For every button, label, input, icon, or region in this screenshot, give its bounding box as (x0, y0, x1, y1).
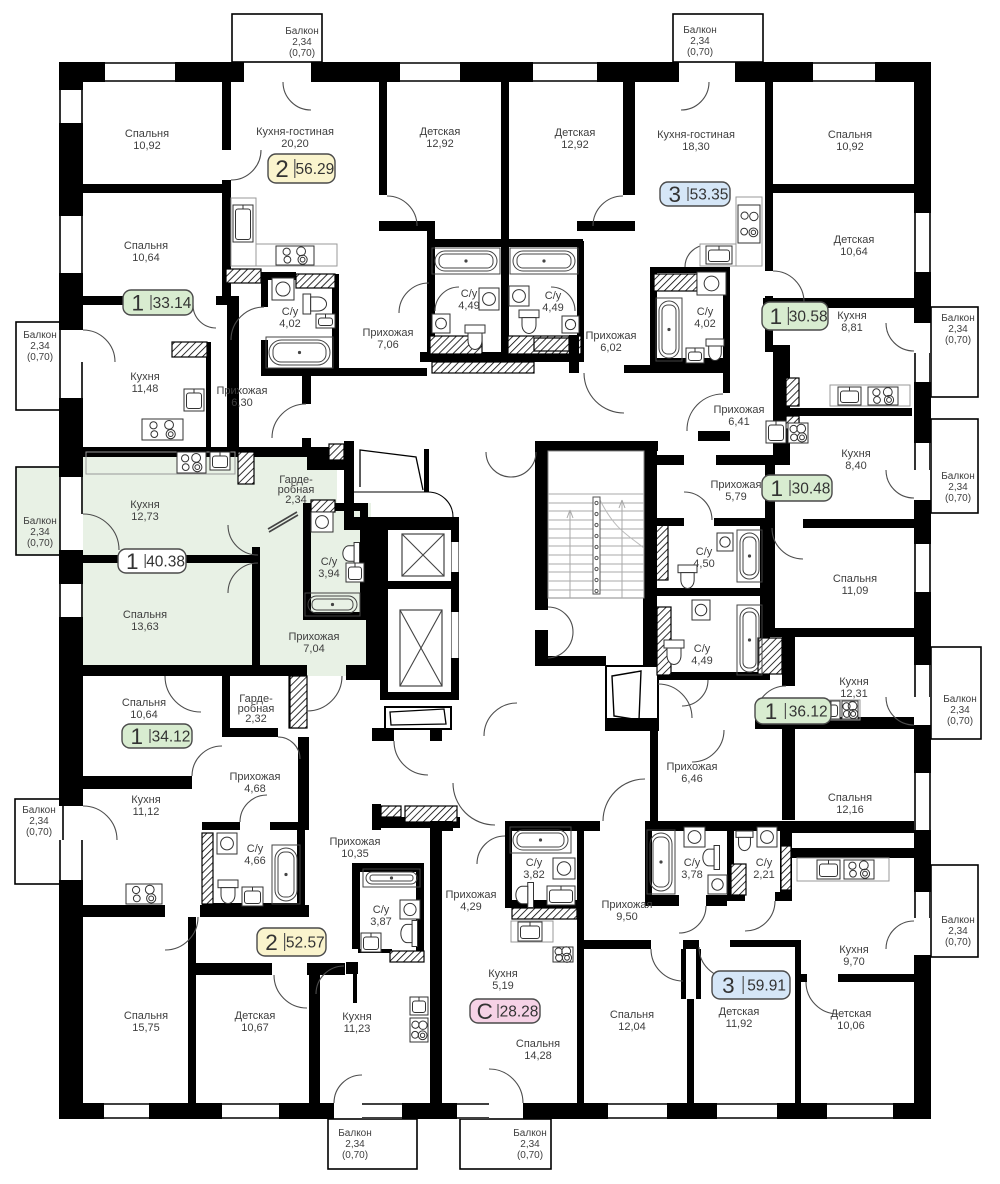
svg-text:1: 1 (131, 291, 144, 316)
svg-text:С/у3,78: С/у3,78 (681, 857, 702, 881)
svg-text:Кухня9,70: Кухня9,70 (839, 944, 868, 968)
svg-text:Кухня5,19: Кухня5,19 (488, 968, 517, 992)
svg-text:1: 1 (770, 304, 783, 329)
svg-text:59.91: 59.91 (747, 978, 786, 995)
svg-text:С/у4,49: С/у4,49 (691, 643, 712, 667)
svg-text:Кухня8,40: Кухня8,40 (841, 448, 870, 472)
svg-text:Кухня12,73: Кухня12,73 (130, 499, 159, 523)
svg-text:С/у4,02: С/у4,02 (279, 306, 300, 330)
svg-text:Кухня11,12: Кухня11,12 (131, 794, 160, 818)
svg-text:С/у3,94: С/у3,94 (318, 556, 339, 580)
svg-text:36.12: 36.12 (789, 704, 828, 721)
svg-text:34.12: 34.12 (152, 729, 191, 746)
svg-text:Кухня11,23: Кухня11,23 (342, 1011, 371, 1035)
svg-text:3: 3 (722, 973, 735, 998)
svg-text:2: 2 (265, 930, 278, 955)
svg-text:С/у4,02: С/у4,02 (694, 306, 715, 330)
svg-text:С/у3,82: С/у3,82 (523, 857, 544, 881)
svg-text:Кухня8,81: Кухня8,81 (837, 310, 866, 334)
svg-text:3: 3 (668, 182, 681, 207)
svg-text:52.57: 52.57 (286, 935, 325, 952)
svg-text:С/у4,50: С/у4,50 (693, 546, 714, 570)
svg-text:С/у4,66: С/у4,66 (244, 843, 265, 867)
svg-text:53.35: 53.35 (690, 187, 729, 204)
svg-text:33.14: 33.14 (153, 295, 192, 312)
svg-text:40.38: 40.38 (146, 554, 185, 571)
svg-text:30.48: 30.48 (792, 481, 831, 498)
svg-text:Кухня12,31: Кухня12,31 (839, 676, 868, 700)
svg-text:1: 1 (770, 476, 783, 501)
svg-text:Кухня11,48: Кухня11,48 (130, 371, 159, 395)
svg-text:С/у4,49: С/у4,49 (542, 290, 563, 314)
svg-text:1: 1 (126, 549, 139, 574)
svg-text:1: 1 (130, 724, 143, 749)
svg-text:1: 1 (765, 699, 778, 724)
svg-text:С: С (477, 999, 493, 1024)
svg-text:С/у3,87: С/у3,87 (370, 904, 391, 928)
svg-text:56.29: 56.29 (296, 161, 335, 178)
svg-text:30.58: 30.58 (789, 309, 828, 326)
svg-text:С/у4,49: С/у4,49 (458, 288, 479, 312)
svg-text:2: 2 (275, 156, 288, 183)
svg-text:С/у2,21: С/у2,21 (753, 857, 774, 881)
svg-text:28.28: 28.28 (500, 1004, 539, 1021)
